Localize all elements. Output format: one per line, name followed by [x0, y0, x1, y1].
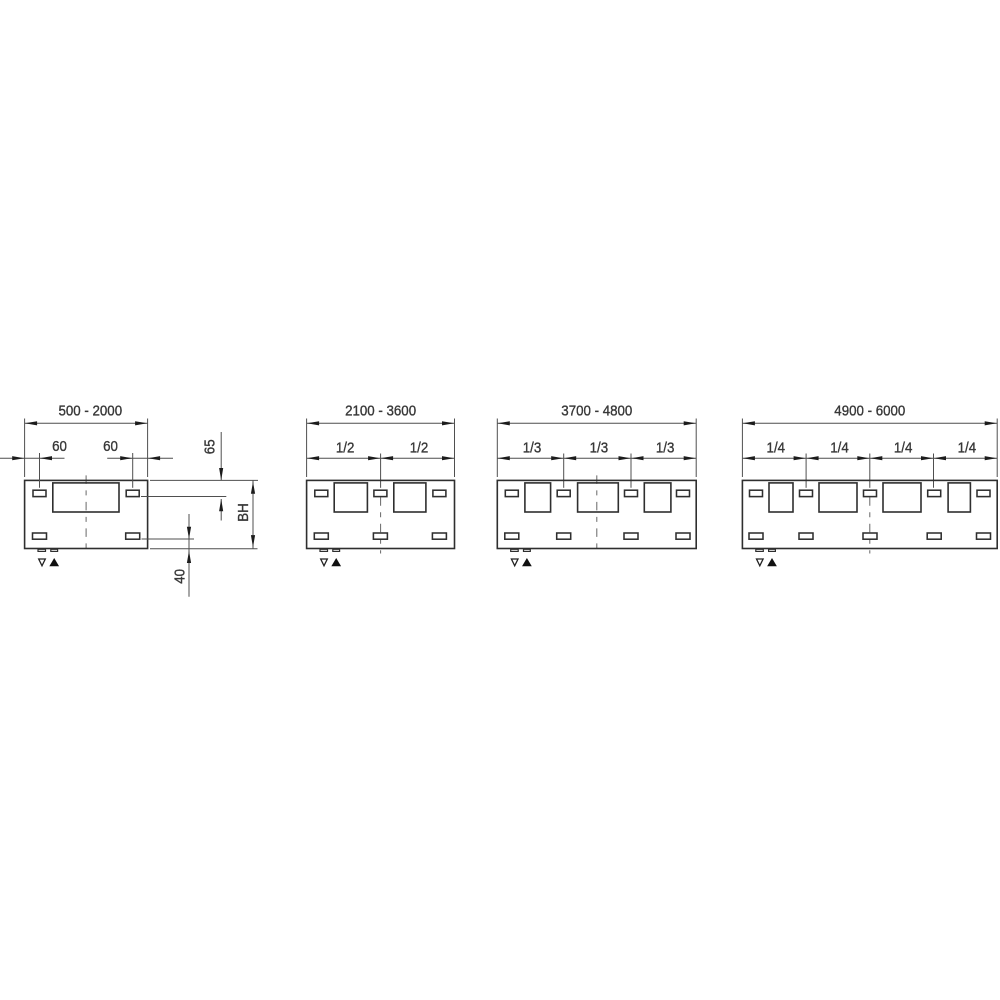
- svg-text:500 - 2000: 500 - 2000: [58, 402, 122, 419]
- svg-text:3700 - 4800: 3700 - 4800: [561, 402, 632, 419]
- svg-text:65: 65: [201, 439, 218, 454]
- svg-text:60: 60: [103, 437, 118, 454]
- svg-text:1/4: 1/4: [958, 439, 977, 456]
- svg-text:60: 60: [52, 437, 67, 454]
- svg-text:BH: BH: [234, 503, 251, 521]
- svg-text:40: 40: [171, 569, 188, 584]
- svg-text:1/4: 1/4: [767, 439, 786, 456]
- svg-text:1/2: 1/2: [410, 439, 429, 456]
- svg-text:4900 - 6000: 4900 - 6000: [834, 402, 905, 419]
- svg-text:1/4: 1/4: [830, 439, 849, 456]
- svg-text:1/4: 1/4: [894, 439, 913, 456]
- svg-text:1/3: 1/3: [656, 439, 675, 456]
- svg-text:1/3: 1/3: [590, 439, 609, 456]
- svg-text:1/2: 1/2: [336, 439, 355, 456]
- svg-text:2100 - 3600: 2100 - 3600: [345, 402, 416, 419]
- svg-text:1/3: 1/3: [523, 439, 542, 456]
